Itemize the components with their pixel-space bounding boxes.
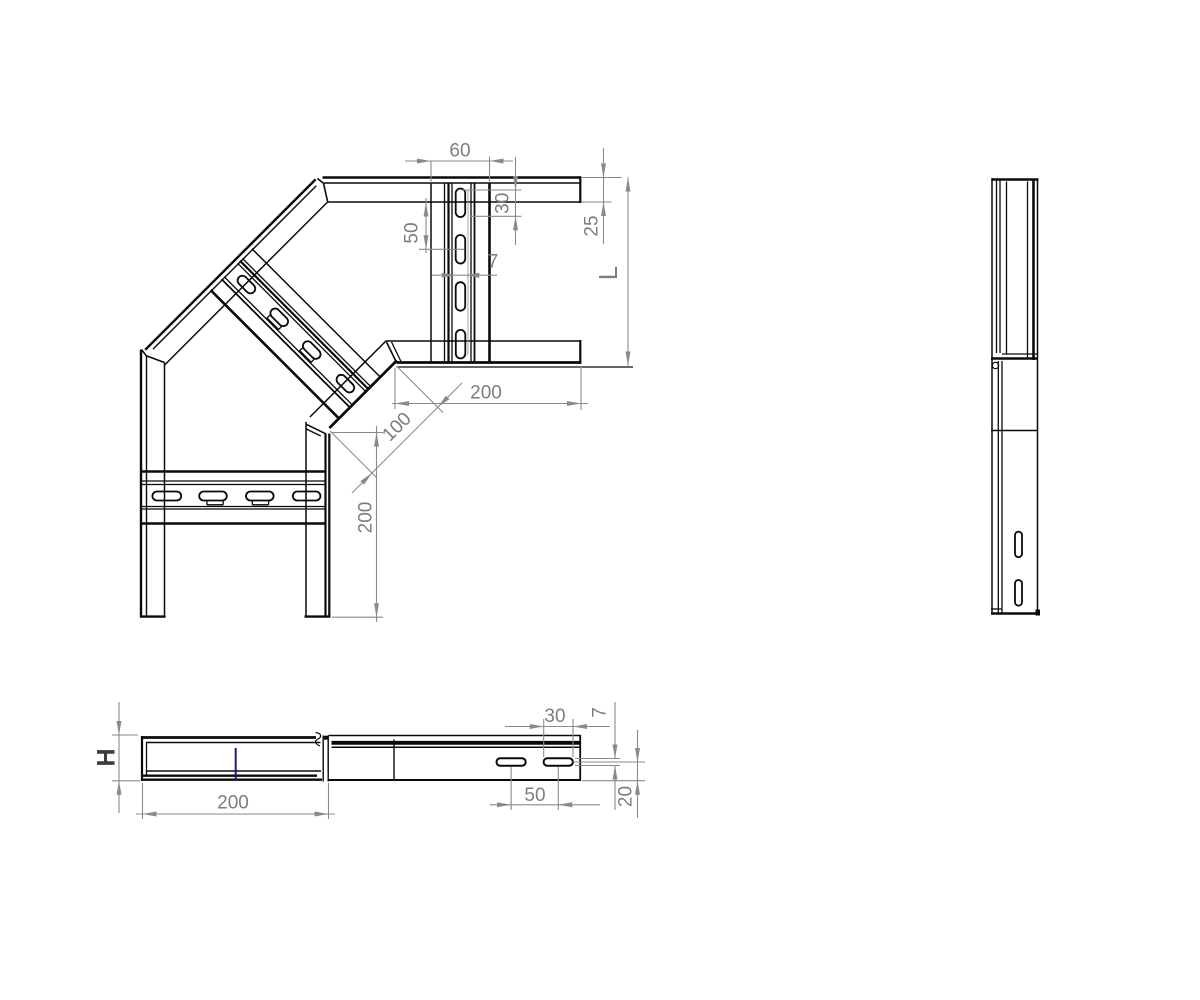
- svg-text:200: 200: [356, 502, 377, 534]
- svg-text:7: 7: [488, 252, 499, 273]
- svg-text:50: 50: [402, 222, 423, 243]
- svg-text:30: 30: [493, 193, 514, 214]
- svg-text:200: 200: [470, 383, 502, 404]
- svg-text:7: 7: [590, 707, 611, 718]
- svg-text:30: 30: [544, 706, 565, 727]
- svg-text:20: 20: [616, 786, 637, 807]
- svg-text:25: 25: [582, 215, 603, 236]
- svg-text:50: 50: [524, 785, 545, 806]
- svg-text:L: L: [593, 266, 623, 280]
- svg-text:200: 200: [217, 793, 249, 814]
- svg-text:60: 60: [449, 141, 470, 162]
- svg-text:H: H: [93, 748, 121, 766]
